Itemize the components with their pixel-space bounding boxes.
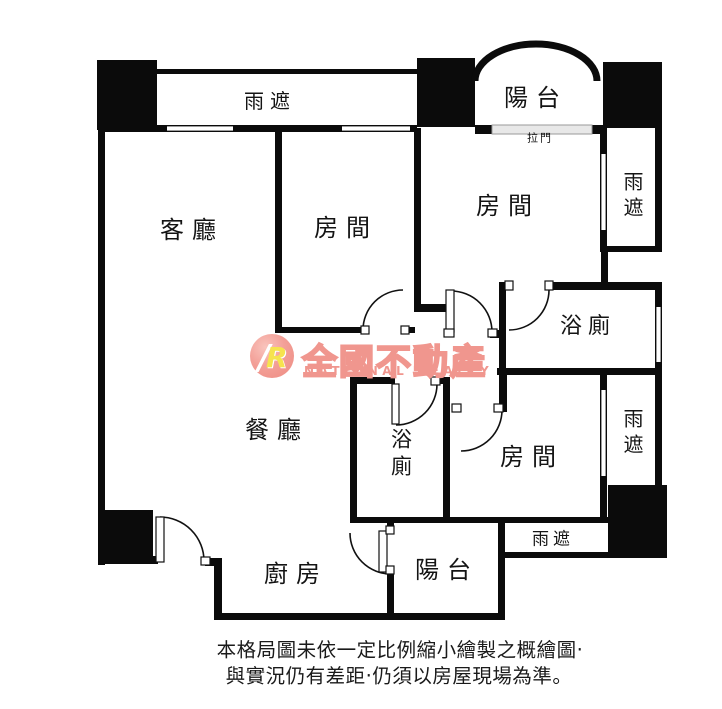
balcony-label-top: 陽台 [504,86,568,110]
window [655,307,662,362]
disclaimer-line-2: 與實況仍有差距‧仍須以房屋現場為準。 [226,660,573,689]
window [600,154,607,230]
watermark-brand-english: NATIONAL REALTY [304,364,493,378]
balcony-label-bottom: 陽台 [415,558,479,582]
window [342,125,410,132]
dining-room-label: 餐廳 [245,418,309,442]
kitchen-label: 廚房 [264,562,328,586]
disclaimer-line-1: 本格局圖未依一定比例縮小繪製之概繪圖‧ [217,634,584,663]
bedroom-bottom-label: 房間 [500,445,564,469]
balcony-arch [475,44,597,81]
watermark-r-letter: R [266,341,288,374]
pillar-bottom-right [608,485,667,558]
door-arc-bedroom-middle [363,290,403,330]
sliding-door-label: 拉門 [527,133,553,144]
door-arc-bathroom-upper [509,290,549,330]
door-arc-bathroom-lower [396,384,437,425]
canopy-label-top: 雨遮 [244,91,296,111]
floorplan-page: 雨遮 陽台 拉門 雨遮 客廳 房間 房間 浴廁 餐廳 浴廁 房間 雨遮 雨遮 廚… [0,0,722,709]
canopy-label-bottom: 雨遮 [532,532,574,549]
bedroom-right-label: 房間 [476,194,540,218]
pillar-top-middle [417,58,475,127]
bathroom-lower-label: 浴廁 [390,428,411,482]
living-room-label: 客廳 [160,218,224,242]
door-arc-entrance [160,517,204,561]
window [167,125,233,132]
door-arc-bedroom-right [451,291,492,332]
pillar-bottom-left [100,510,153,563]
canopy-label-right-lower: 雨遮 [622,408,642,460]
watermark-logo-icon: / R [250,334,294,378]
pillar-top-right [603,62,662,128]
pillar-top-left [97,60,157,130]
window [600,390,607,476]
bedroom-middle-label: 房間 [314,216,378,240]
canopy-label-right-upper: 雨遮 [622,171,642,223]
door-arc-bedroom-bottom [461,410,502,451]
bathroom-upper-label: 浴廁 [560,316,616,338]
